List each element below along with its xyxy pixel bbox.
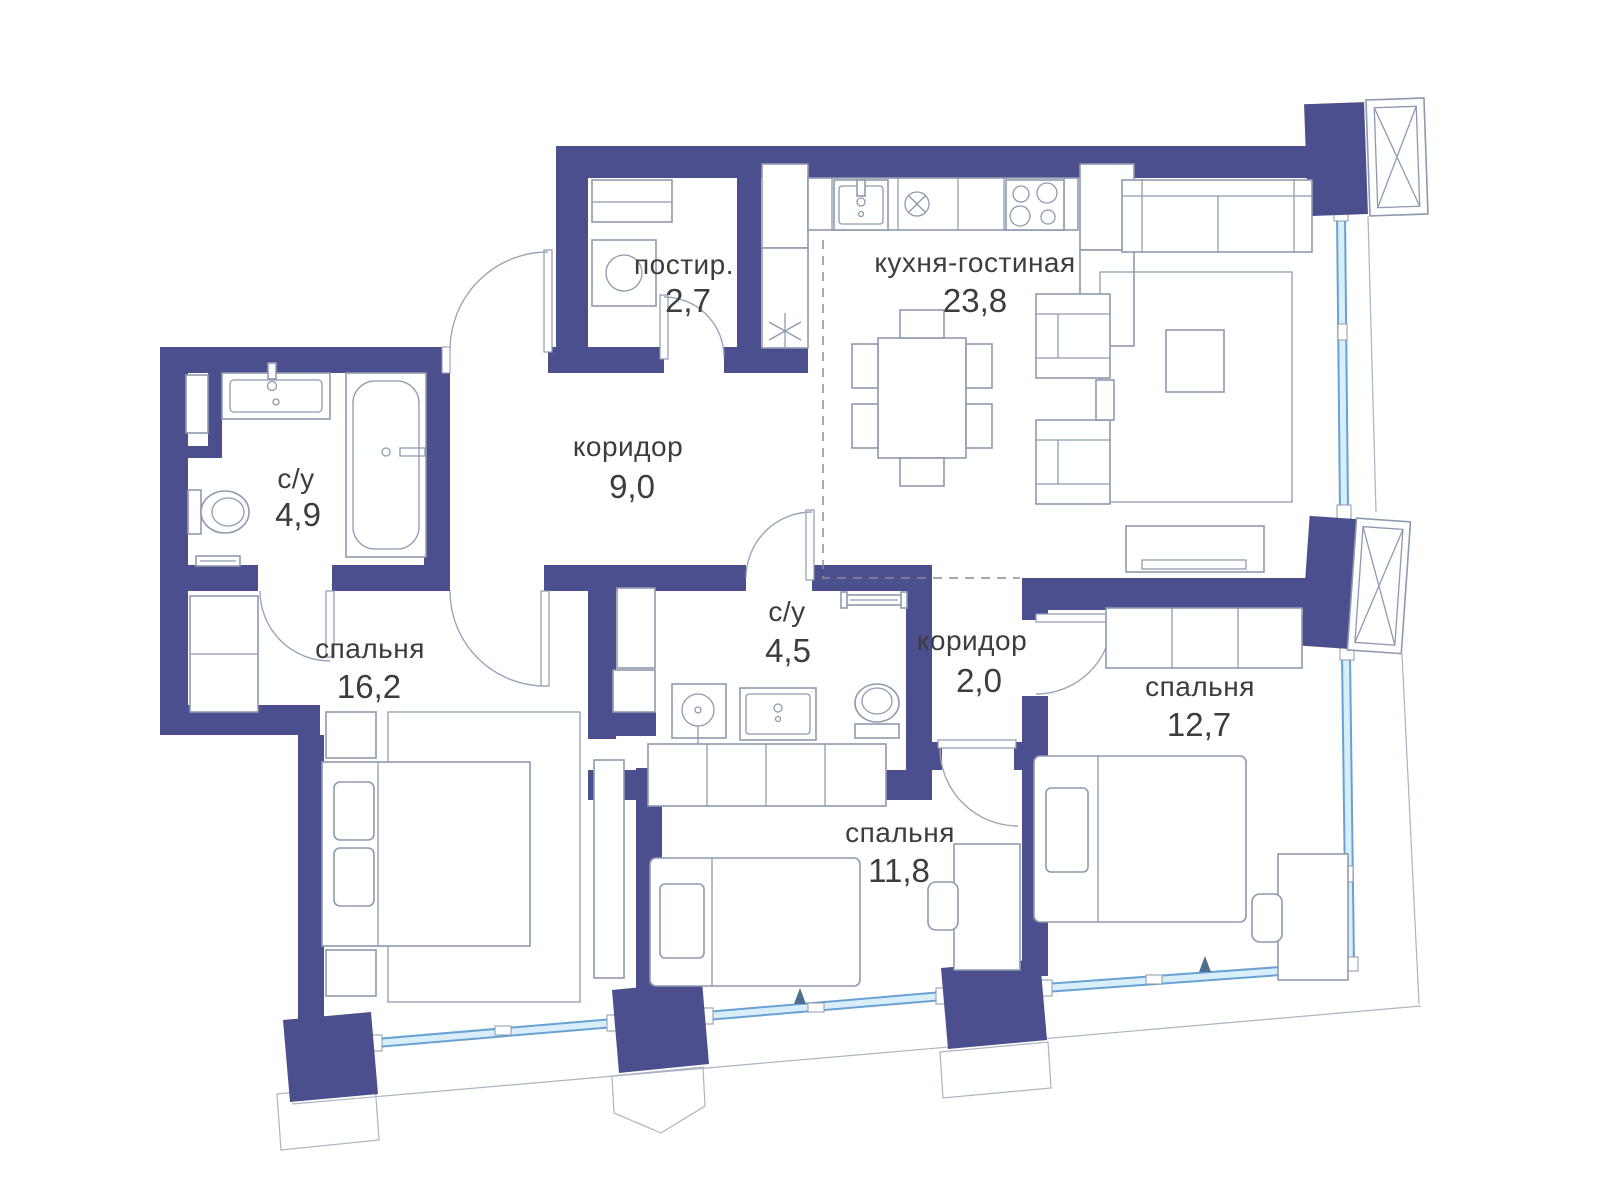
towel-rail-icon xyxy=(196,556,240,566)
single-bed xyxy=(1034,756,1246,922)
wardrobe xyxy=(1106,608,1302,668)
room-area-kitchen-living: 23,8 xyxy=(943,282,1007,319)
chair xyxy=(928,882,958,930)
floor-plan: постир. 2,7 кухня-гостиная 23,8 коридор … xyxy=(0,0,1600,1200)
door-bathroom-2 xyxy=(746,510,814,580)
double-bed xyxy=(322,762,530,946)
window-box-middle xyxy=(1301,515,1411,654)
room-label-laundry: постир. xyxy=(634,249,734,280)
armchair xyxy=(1036,420,1110,504)
kitchen-sink-icon xyxy=(834,180,888,230)
chair xyxy=(1252,894,1282,942)
towel-rail-icon xyxy=(841,592,907,608)
vent-marker-icon xyxy=(794,988,806,1004)
balcony-pier xyxy=(941,959,1047,1049)
room-area-hallway-main: 9,0 xyxy=(609,468,655,505)
shaft-cabinet xyxy=(617,588,655,668)
floor-plan-canvas: постир. 2,7 кухня-гостиная 23,8 коридор … xyxy=(0,0,1600,1200)
balcony-pier xyxy=(283,1012,378,1102)
toilet-icon xyxy=(188,490,249,534)
wardrobe xyxy=(190,596,258,712)
shelf xyxy=(592,180,672,222)
desk xyxy=(954,844,1020,970)
room-area-bathroom-2: 4,5 xyxy=(765,632,811,669)
cabinet xyxy=(186,375,208,433)
room-label-bedroom-1: спальня xyxy=(315,633,425,664)
nightstand xyxy=(326,950,376,996)
sofa xyxy=(1122,180,1312,252)
sink-icon xyxy=(740,688,816,740)
room-label-hallway-main: коридор xyxy=(573,431,683,462)
armchair xyxy=(1036,294,1110,378)
bedroom-3-furniture xyxy=(648,744,1020,986)
room-area-bedroom-2: 12,7 xyxy=(1167,706,1231,743)
door-bedroom-1 xyxy=(450,591,549,686)
balcony-pier xyxy=(612,981,709,1073)
room-area-bedroom-3: 11,8 xyxy=(868,852,930,889)
room-label-bathroom-1: с/у xyxy=(277,463,314,494)
stove-icon xyxy=(1006,180,1064,230)
dining-table xyxy=(852,310,992,486)
room-label-bedroom-2: спальня xyxy=(1145,671,1255,702)
room-area-laundry: 2,7 xyxy=(665,282,711,319)
desk xyxy=(1278,854,1348,980)
shower-icon xyxy=(672,684,726,746)
room-area-bedroom-1: 16,2 xyxy=(337,668,401,705)
room-label-hallway-2: коридор xyxy=(917,625,1027,656)
room-label-bedroom-3: спальня xyxy=(845,817,955,848)
door-bedroom-3 xyxy=(938,740,1018,826)
tv-console xyxy=(1126,526,1264,572)
door-bedroom-2 xyxy=(1036,614,1112,694)
toilet-icon xyxy=(855,684,899,738)
window-box-top xyxy=(1304,98,1428,218)
room-area-hallway-2: 2,0 xyxy=(956,662,1002,699)
desk xyxy=(594,760,624,978)
single-bed xyxy=(650,858,860,986)
room-label-bathroom-2: с/у xyxy=(768,596,805,627)
entry-door xyxy=(442,250,552,373)
room-area-bathroom-1: 4,9 xyxy=(275,496,321,533)
bathtub-icon xyxy=(346,373,426,557)
laundry-fixtures xyxy=(592,180,672,306)
coffee-table xyxy=(1166,330,1224,392)
wardrobe xyxy=(648,744,886,806)
vent-marker-icon xyxy=(1199,956,1211,972)
nightstand xyxy=(326,712,376,758)
bathroom-2-fixtures xyxy=(613,588,907,746)
shaft-cabinet xyxy=(613,670,655,712)
bedroom-2-furniture xyxy=(1034,608,1348,980)
side-table xyxy=(1096,380,1114,420)
room-label-kitchen-living: кухня-гостиная xyxy=(874,247,1075,278)
